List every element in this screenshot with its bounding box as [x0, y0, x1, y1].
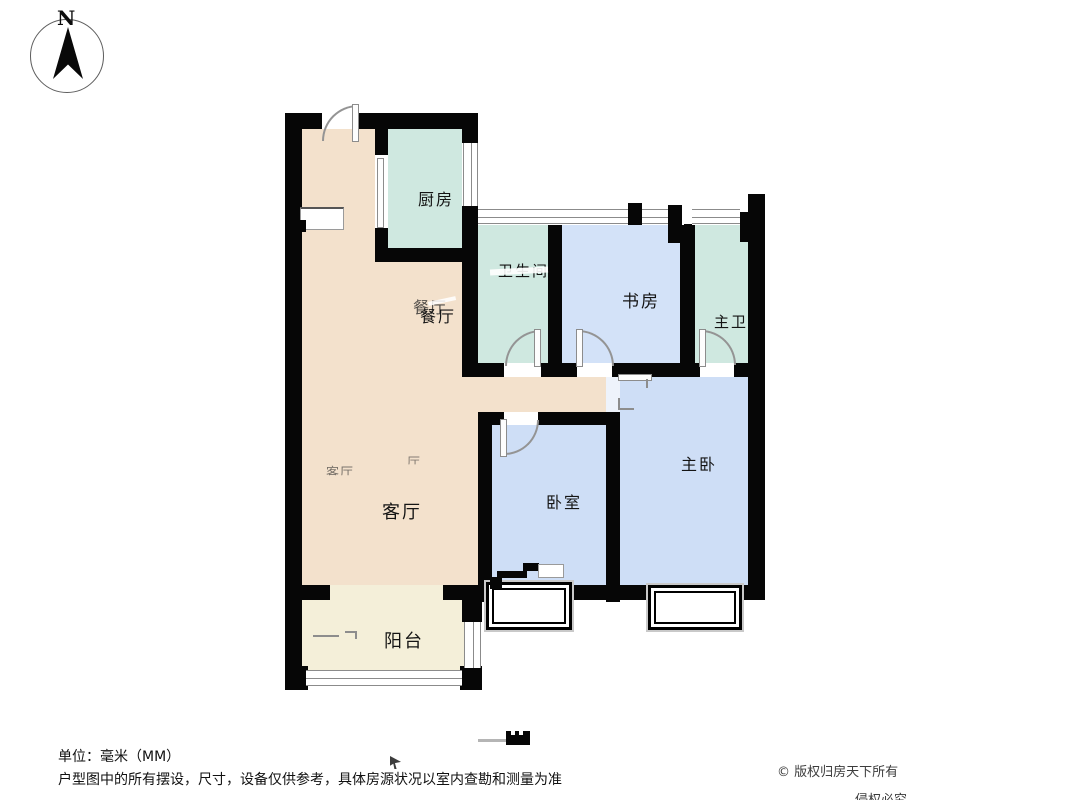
print-artifact: [355, 631, 357, 639]
wall-segment: [462, 206, 478, 368]
wall-segment: [748, 194, 765, 242]
wall-segment: [375, 228, 388, 248]
wall-segment: [548, 225, 562, 363]
print-artifact: [523, 563, 539, 571]
wall-segment: [478, 412, 492, 602]
cursor-artifact-icon: [390, 756, 401, 769]
room-master-bedroom-floor: [620, 377, 748, 585]
wall-segment: [568, 585, 648, 600]
wall-segment: [462, 363, 504, 377]
kitchen-sliding-door: [377, 158, 384, 228]
bathroom-study-window: [478, 209, 628, 224]
wall-segment: [748, 210, 765, 600]
wall-segment: [285, 585, 330, 600]
bedroom-bay-window: [486, 582, 572, 630]
wall-segment: [668, 205, 682, 243]
scale-artifact-block: [506, 731, 530, 745]
wall-segment: [680, 225, 695, 374]
print-artifact: [490, 577, 502, 589]
master-bath-door-leaf: [699, 329, 706, 367]
study-window: [642, 209, 668, 224]
master-bedroom-door-tick: [646, 379, 648, 388]
wall-segment: [541, 363, 577, 377]
room-label-living: 客厅: [382, 498, 422, 524]
wall-segment: [375, 248, 478, 262]
room-label-bedroom: 卧室: [546, 489, 582, 513]
print-artifact: [313, 635, 339, 637]
wall-segment: [285, 113, 302, 690]
wall-segment: [606, 412, 620, 602]
entrance-door-leaf: [352, 104, 359, 142]
shelf-symbol-tick: [296, 220, 306, 232]
floorplan-page: N: [0, 0, 1066, 800]
wall-segment: [285, 113, 322, 129]
copyright-text: © 版权归房天下所有: [777, 761, 898, 780]
print-artifact: [618, 398, 634, 410]
master-bedroom-bay-window-inner: [654, 591, 736, 624]
scale-artifact-notch: [519, 731, 523, 735]
wall-segment: [460, 666, 482, 690]
bedroom-door-leaf: [500, 419, 507, 457]
wall-segment: [285, 666, 308, 690]
compass-north-label: N: [57, 6, 75, 30]
unit-note: 单位：毫米（MM）: [58, 746, 180, 766]
wall-segment: [684, 224, 692, 244]
balcony-bottom-window: [306, 670, 462, 686]
room-label-kitchen: 厨房: [418, 186, 454, 210]
shelf-symbol: [300, 207, 344, 230]
wall-segment: [462, 113, 478, 143]
room-label-study: 书房: [622, 287, 660, 312]
room-label-balcony: 阳台: [384, 627, 424, 653]
master-bath-window: [692, 209, 740, 224]
copyright-line2: 侵权必究: [855, 789, 907, 800]
disclaimer-text: 户型图中的所有摆设，尺寸，设备仅供参考，具体房源状况以室内查勘和测量为准: [58, 769, 562, 789]
scale-artifact-notch: [511, 731, 515, 735]
wall-segment: [628, 203, 642, 225]
wall-segment: [375, 128, 388, 155]
balcony-side-window: [464, 622, 481, 668]
print-artifact: [538, 564, 564, 578]
wall-segment: [462, 585, 482, 622]
room-label-dining: 餐厅: [420, 303, 456, 327]
bathroom-door-leaf: [534, 329, 541, 367]
wall-segment: [357, 113, 462, 129]
kitchen-window: [463, 143, 478, 206]
room-label-master-bath: 主卫: [714, 311, 748, 332]
room-label-master-bedroom: 主卧: [681, 451, 717, 475]
study-door-leaf: [576, 329, 583, 367]
bedroom-bay-window-inner: [492, 588, 566, 624]
master-bedroom-bay-window: [648, 585, 742, 630]
room-dining-floor: [302, 128, 375, 262]
scale-artifact-line: [478, 739, 506, 742]
